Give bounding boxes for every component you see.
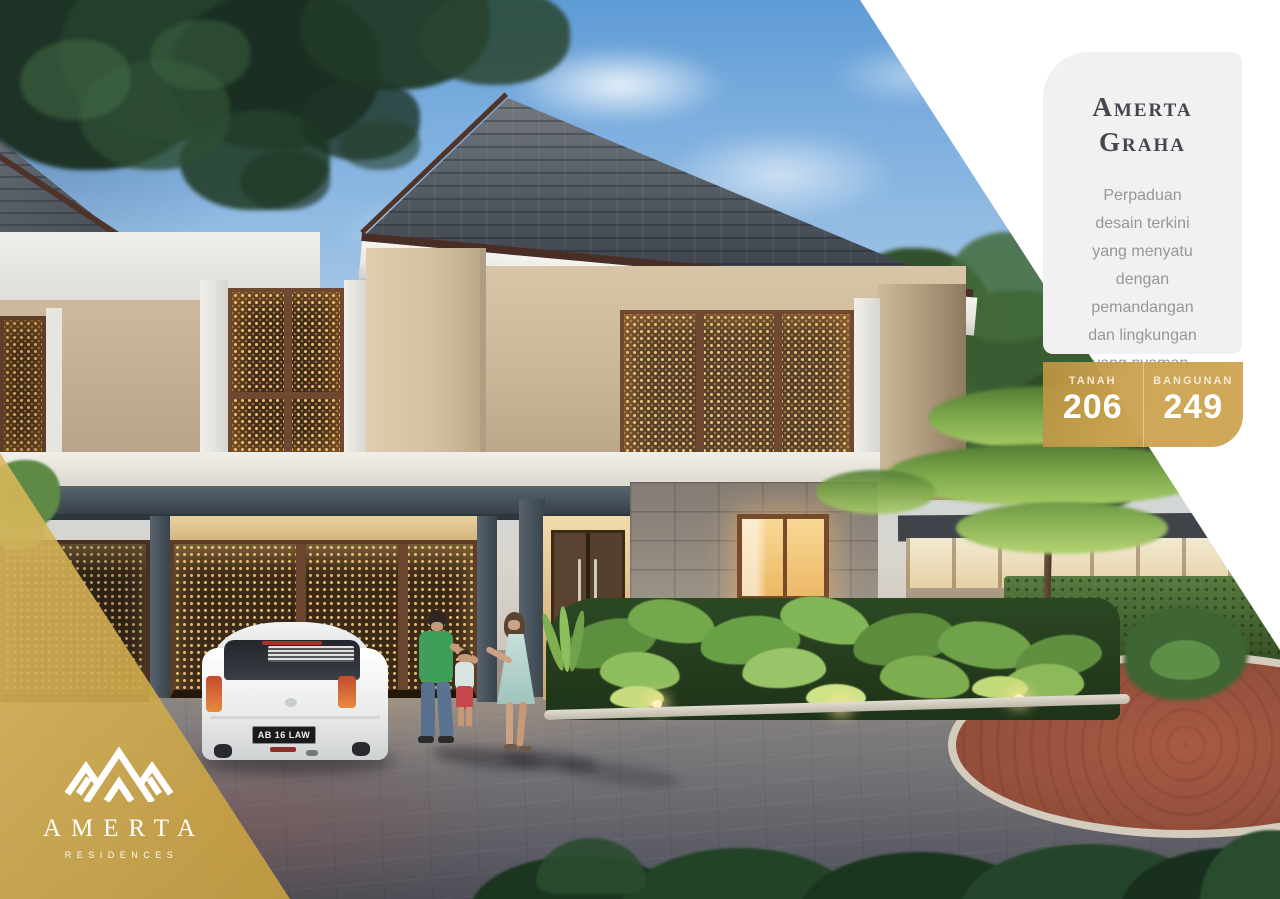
white-pilaster <box>200 280 228 472</box>
info-card: Amerta Graha Perpaduan desain terkini ya… <box>1043 52 1242 354</box>
rear-reflector <box>270 747 296 752</box>
white-pilaster <box>344 280 368 472</box>
tree-canopy <box>886 444 1212 506</box>
exhaust-pipe <box>306 750 318 756</box>
man-shirt <box>419 631 453 683</box>
window-mullion <box>284 292 292 454</box>
tail-light-left <box>206 676 222 712</box>
brochure-page: AB 16 LAW <box>0 0 1280 899</box>
garage-door-frame <box>398 544 408 690</box>
tanah-value: 206 <box>1043 388 1143 427</box>
cloud <box>800 30 1020 120</box>
bangunan-label: BANGUNAN <box>1144 375 1244 387</box>
man-shoe <box>438 736 454 743</box>
woman-sandal <box>519 746 532 752</box>
child-leg <box>466 707 472 726</box>
woman-leg <box>506 702 513 746</box>
mountain-peaks-icon <box>64 740 174 802</box>
child-leg <box>458 707 464 726</box>
man-face <box>431 622 443 631</box>
rear-window-blind <box>268 646 354 662</box>
overhanging-foliage <box>420 0 570 85</box>
tree-canopy <box>956 502 1168 554</box>
overhanging-foliage <box>340 120 420 170</box>
child-pants <box>456 686 473 709</box>
carport-beam <box>0 486 708 516</box>
neighbor-lattice-window <box>0 316 46 458</box>
spec-bangunan: BANGUNAN 249 <box>1144 362 1244 447</box>
logo-tagline: RESIDENCES <box>26 850 212 860</box>
bumper-line <box>210 716 380 719</box>
project-description: Perpaduan desain terkini yang menyatu de… <box>1057 182 1228 378</box>
window-mullion <box>232 392 340 399</box>
window-mullion <box>696 314 704 470</box>
child-shirt <box>455 662 474 689</box>
project-title: Amerta Graha <box>1057 90 1228 160</box>
tail-light-right <box>338 676 356 708</box>
foreground-bush-leaf <box>1150 640 1220 680</box>
car-wheel <box>352 742 370 756</box>
tanah-label: TANAH <box>1043 375 1143 387</box>
man-shoe <box>418 736 434 743</box>
man-leg <box>421 682 435 738</box>
spec-tanah: TANAH 206 <box>1043 362 1144 447</box>
carport-column <box>150 516 170 698</box>
lattice-window-right <box>620 310 854 474</box>
foliage-highlight <box>20 40 130 120</box>
logo-name: AMERTA <box>26 815 212 843</box>
carport-column <box>477 516 497 702</box>
license-plate: AB 16 LAW <box>252 726 316 744</box>
tree-canopy <box>816 470 936 514</box>
amerta-logo: AMERTA RESIDENCES <box>26 740 212 860</box>
woman-sandal <box>504 744 517 750</box>
woman-face <box>508 620 520 630</box>
brake-light <box>262 641 322 645</box>
overhanging-foliage <box>240 150 330 210</box>
foliage-highlight <box>150 20 250 90</box>
car-wheel <box>214 744 232 758</box>
spec-badge: TANAH 206 BANGUNAN 249 <box>1043 362 1243 447</box>
window-mullion <box>774 314 782 470</box>
bangunan-value: 249 <box>1144 388 1244 427</box>
lattice-window-left <box>228 288 344 458</box>
white-trim <box>46 308 62 468</box>
car-emblem <box>285 698 297 707</box>
